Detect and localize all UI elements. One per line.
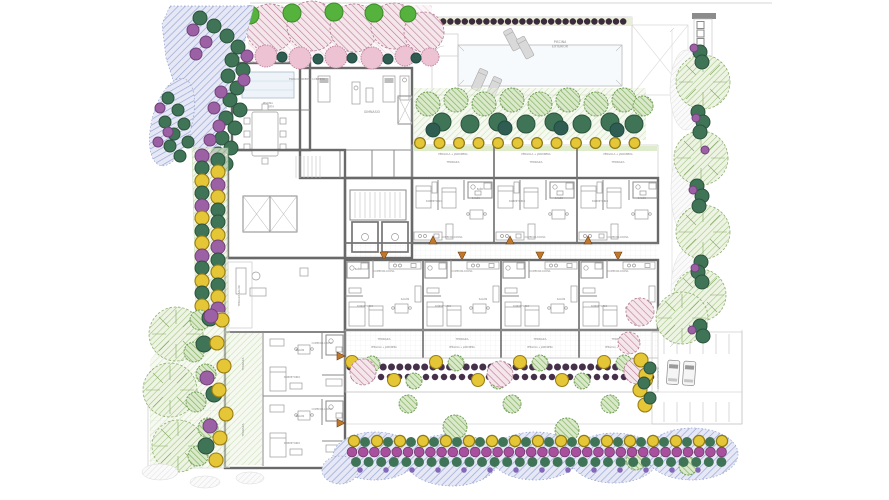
left-terraces	[226, 333, 262, 465]
bedroom-label: DORMITORIO	[357, 304, 373, 308]
kitchen-label: COMEDOR-COCINA	[442, 236, 463, 239]
terrace-label: TERRAZA	[241, 423, 245, 437]
bedroom-label: DORMITORIO	[592, 199, 608, 203]
terrace-label: TERRAZA	[446, 160, 460, 164]
kitchen-label: COMEDOR-COCINA	[374, 270, 395, 273]
indoor-pool-basin	[242, 72, 294, 98]
bedroom-label: DORMITORIO	[509, 199, 525, 203]
groundcover-top-left	[141, 6, 254, 171]
parking-paving	[652, 332, 742, 424]
terrace-label: TERRAZA	[529, 160, 543, 164]
bedroom-label: DORMITORIO	[284, 441, 300, 445]
bedroom-label: DORMITORIO	[435, 304, 451, 308]
terrace-label: TERRAZA	[611, 160, 625, 164]
kitchen-label: COMEDOR-COCINA	[525, 236, 546, 239]
bath-label: BAÑO	[355, 268, 362, 271]
kitchen-label: COMEDOR-COCINA	[312, 408, 333, 411]
car	[682, 361, 696, 386]
parking-area: APARCAMIENTO	[656, 334, 729, 422]
pergola-label: PÉRGOLA + JARDINERA	[449, 346, 475, 349]
pergola-label: PÉRGOLA + JARDINERA	[371, 346, 397, 349]
bedroom-label: DORMITORIO	[513, 304, 529, 308]
pool-label-line1: PISCINA	[554, 40, 567, 44]
pool-label-line2: EXTERIOR	[552, 45, 569, 49]
bedroom-label: DORMITORIO	[591, 304, 607, 308]
terrace-label: TERRAZA	[455, 337, 469, 341]
open-space-label: ESPACIO ABIERTO CUBIERTO	[289, 77, 325, 81]
bath-label: BAÑO	[477, 188, 484, 191]
kitchen-label: COMEDOR-COCINA	[608, 236, 629, 239]
bedroom-label: DORMITORIO	[426, 199, 442, 203]
site-plan-drawing: PISCINA EXTERIOR PISCINA CUBIERTA	[0, 0, 889, 500]
car	[666, 360, 680, 385]
groundcover-bottom	[322, 395, 738, 486]
terrace-label: TERRAZA	[241, 357, 245, 371]
terrace-label: TERRAZA	[533, 337, 547, 341]
pergola-label: PÉRGOLA + JARDINERA	[527, 346, 553, 349]
kitchen-label: COMEDOR-COCINA	[312, 342, 333, 345]
gym-label: GIMNASIO	[364, 110, 381, 114]
hedge-band-bottom	[345, 355, 658, 392]
kitchen-label: COMEDOR-COCINA	[530, 270, 551, 273]
terrace-label: TERRAZA	[377, 337, 391, 341]
kitchen-label: COMEDOR-COCINA	[608, 270, 629, 273]
floor-plan-page: PISCINA EXTERIOR PISCINA CUBIERTA	[0, 0, 889, 500]
kitchen-label: COMEDOR-COCINA	[452, 270, 473, 273]
planting-strip-left	[192, 148, 228, 316]
bedroom-label: DORMITORIO	[284, 375, 300, 379]
tree-band-top	[241, 1, 444, 69]
tree-band-upper-terraces	[414, 88, 653, 143]
